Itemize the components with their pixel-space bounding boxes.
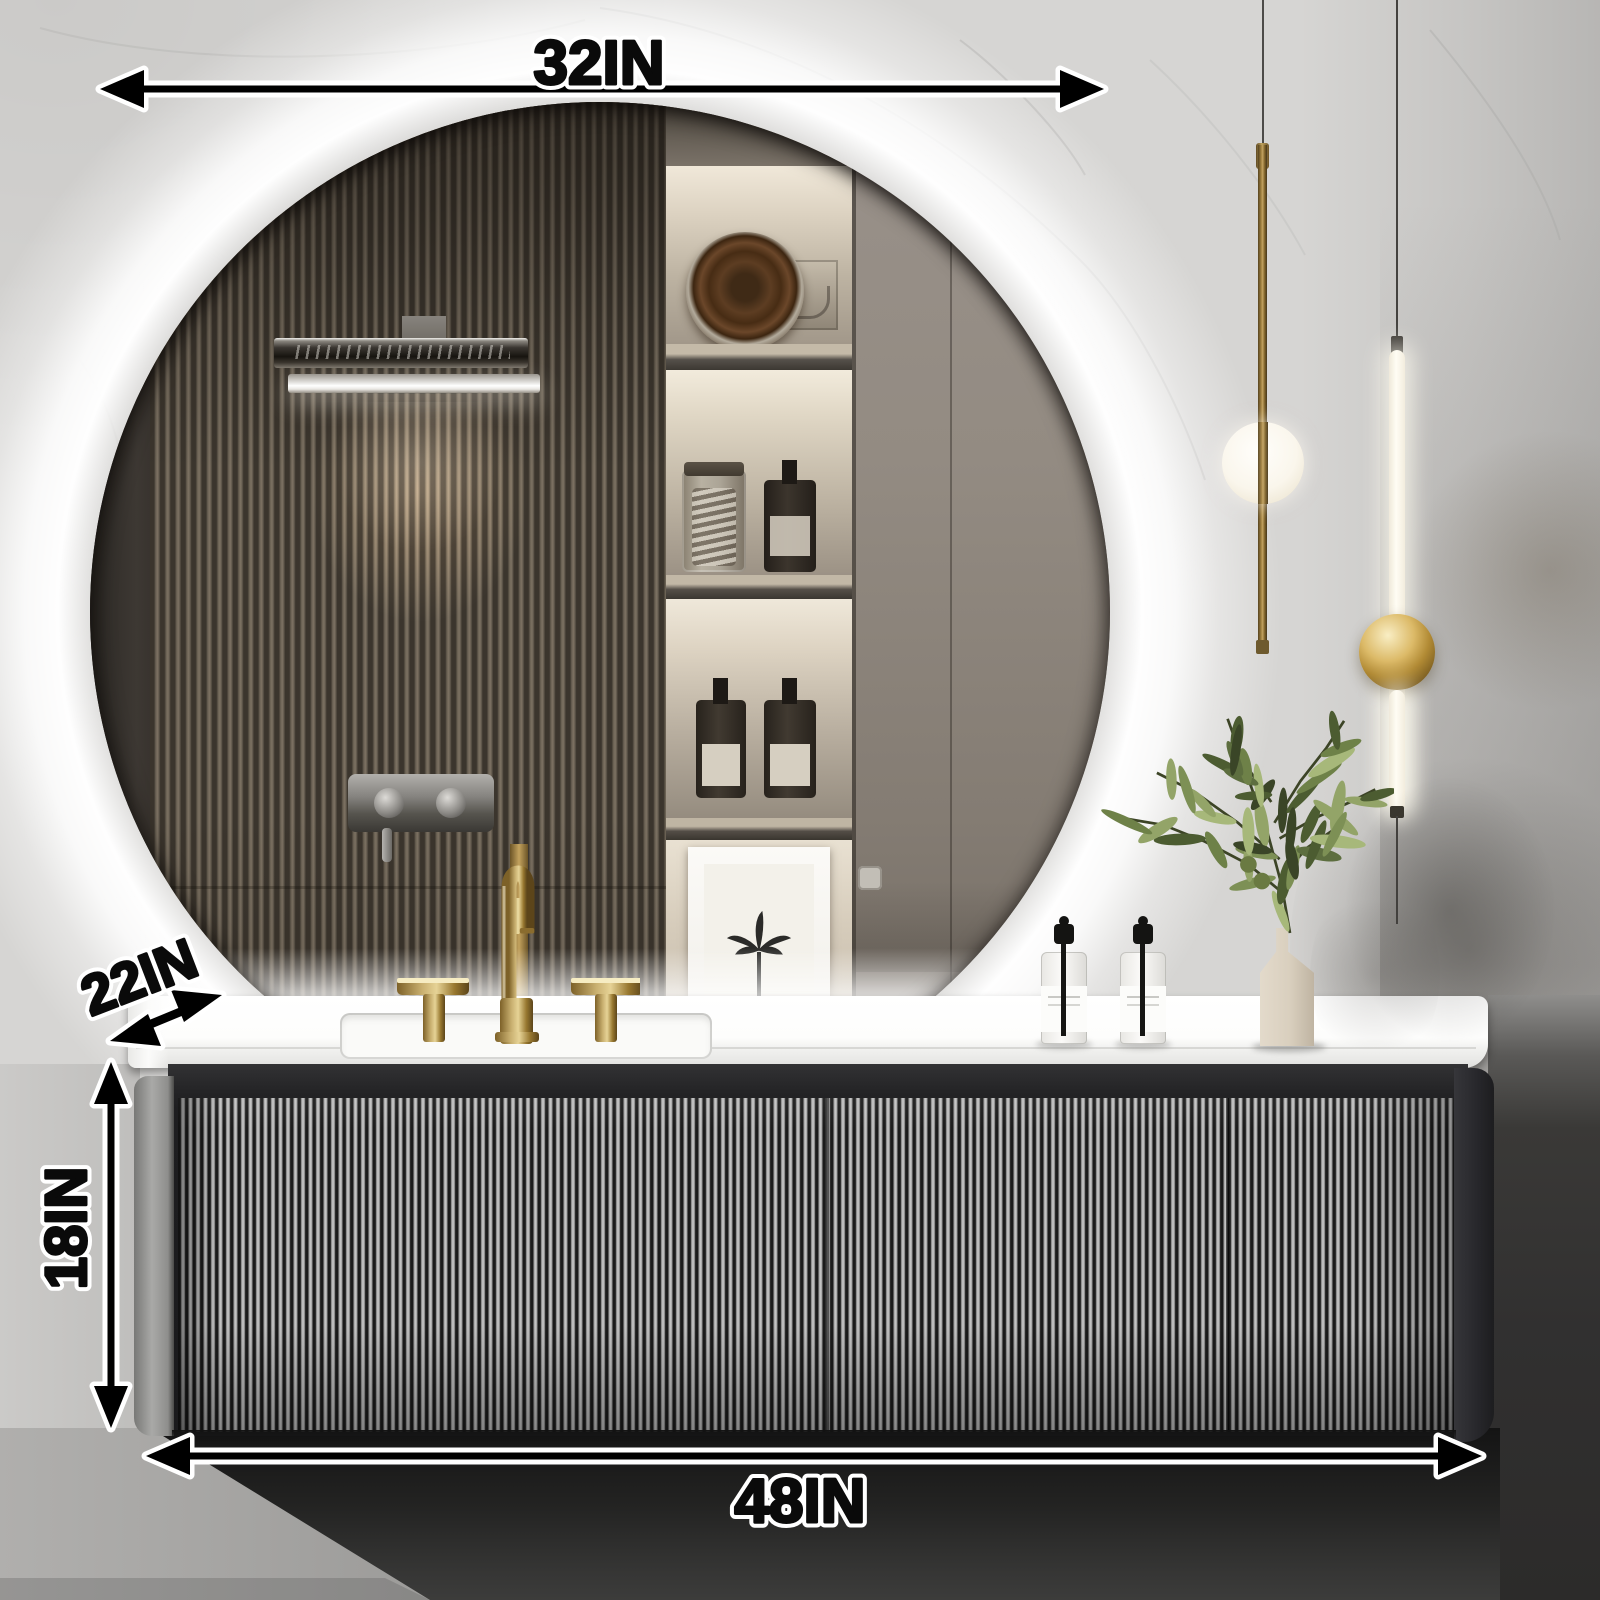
svg-text:32IN: 32IN (534, 29, 665, 98)
svg-text:18IN: 18IN (34, 1167, 99, 1290)
svg-text:48IN: 48IN (735, 1467, 866, 1536)
